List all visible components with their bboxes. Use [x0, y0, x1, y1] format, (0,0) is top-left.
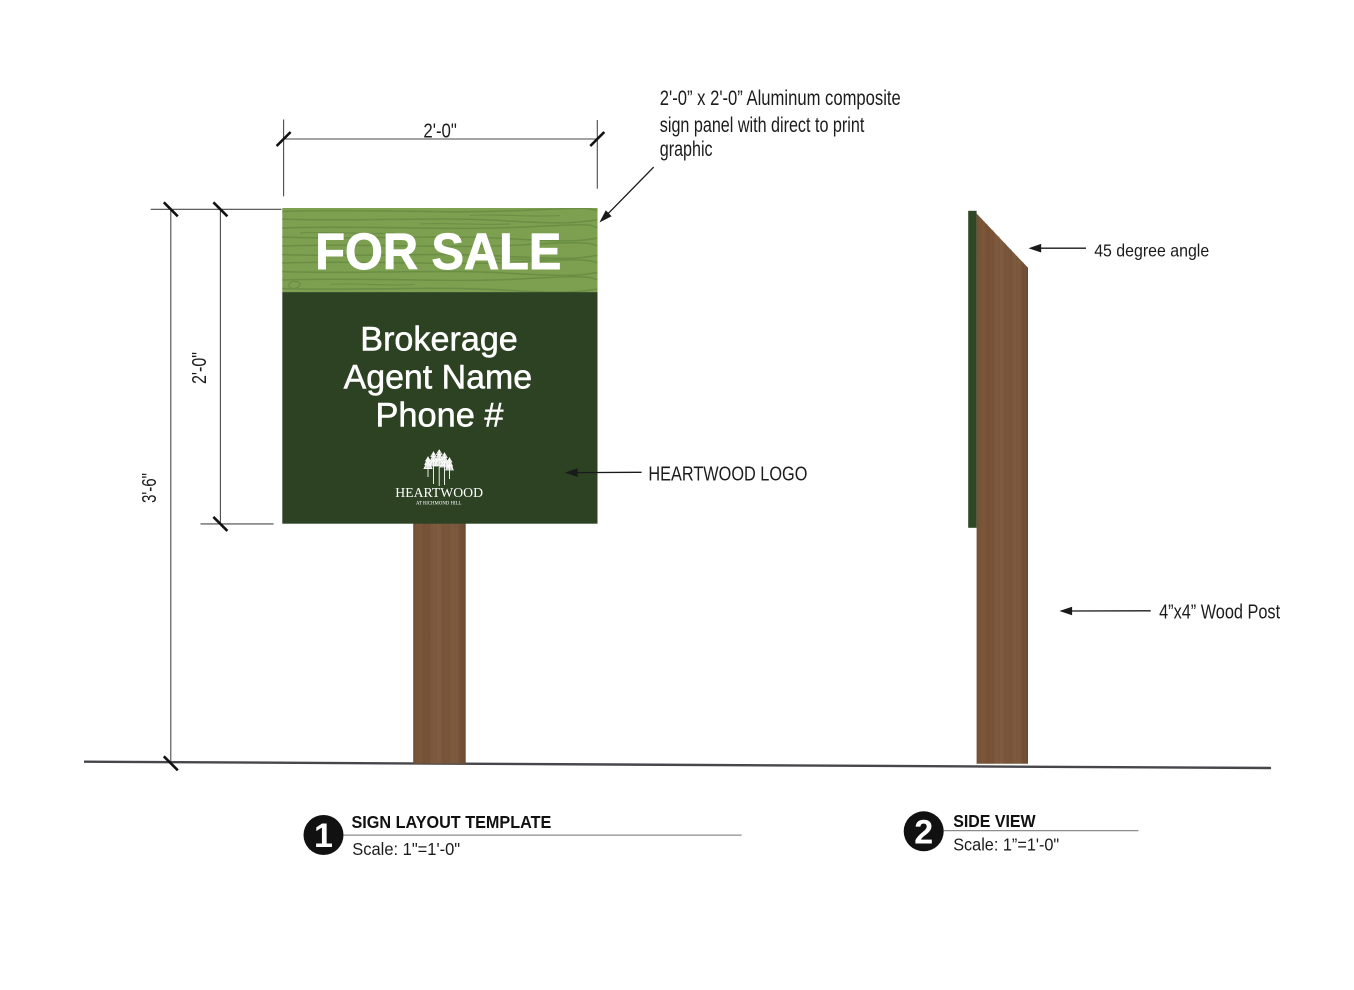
- svg-text:Scale: 1”=1'-0": Scale: 1”=1'-0": [953, 834, 1059, 854]
- svg-text:2'-0": 2'-0": [189, 352, 211, 384]
- svg-text:Scale: 1"=1'-0": Scale: 1"=1'-0": [352, 839, 460, 859]
- svg-text:sign panel with direct to prin: sign panel with direct to print: [660, 114, 865, 137]
- svg-text:4”x4” Wood Post: 4”x4” Wood Post: [1159, 600, 1280, 623]
- svg-text:SIDE VIEW: SIDE VIEW: [953, 811, 1036, 831]
- svg-text:2'-0” x 2'-0” Aluminum compos: 2'-0” x 2'-0” Aluminum composite: [660, 87, 901, 110]
- svg-text:3'-6": 3'-6": [139, 473, 161, 503]
- svg-text:AT RICHMOND HILL: AT RICHMOND HILL: [416, 502, 462, 507]
- svg-text:FOR SALE: FOR SALE: [315, 223, 561, 280]
- svg-text:2: 2: [914, 813, 933, 851]
- svg-text:SIGN LAYOUT TEMPLATE: SIGN LAYOUT TEMPLATE: [352, 812, 552, 832]
- svg-text:Brokerage: Brokerage: [360, 321, 518, 359]
- svg-text:45 degree angle: 45 degree angle: [1094, 241, 1209, 261]
- svg-text:Phone #: Phone #: [376, 397, 504, 435]
- svg-text:Agent Name: Agent Name: [344, 358, 532, 396]
- svg-text:graphic: graphic: [660, 138, 713, 161]
- svg-text:2'-0": 2'-0": [423, 121, 457, 143]
- svg-text:HEARTWOOD: HEARTWOOD: [395, 486, 483, 501]
- svg-text:1: 1: [314, 817, 333, 855]
- svg-text:HEARTWOOD LOGO: HEARTWOOD LOGO: [648, 464, 807, 486]
